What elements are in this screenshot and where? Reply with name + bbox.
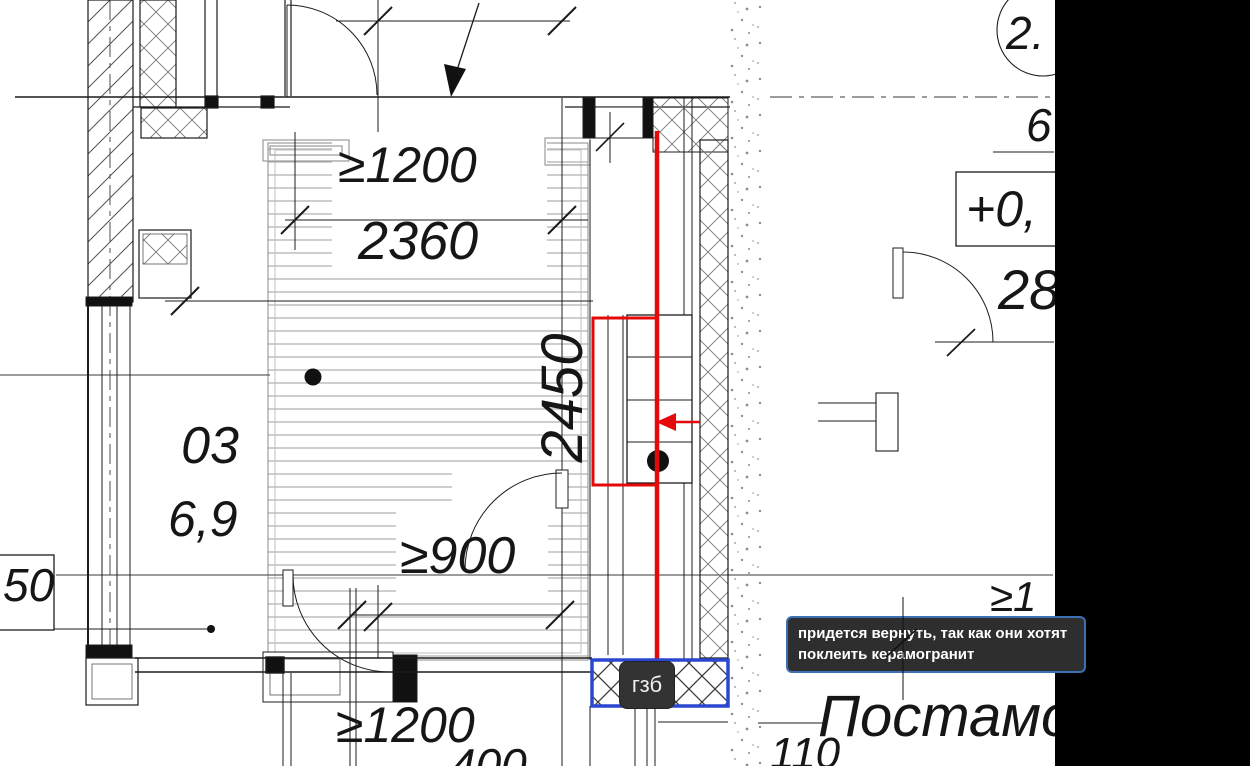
elevation-mark: +0, xyxy=(966,184,1037,234)
pedestal-label: Постамо xyxy=(818,688,1073,746)
dim-top-min: ≥1200 xyxy=(338,140,477,190)
comment-tooltip-line2: поклеить керамогранит xyxy=(798,644,1074,665)
leader-arrow xyxy=(444,3,479,97)
dim-right-partial: 28 xyxy=(998,262,1060,318)
dim-side-actual: 2450 xyxy=(534,333,592,462)
cad-viewport[interactable]: ≥1200 2360 2450 ≥900 ≥1200 400 03 6,9 50… xyxy=(0,0,1250,766)
dim-bottom-partial: 400 xyxy=(450,742,527,766)
gzb-tag-chip[interactable]: гзб xyxy=(620,662,674,708)
room-area-label: 6,9 xyxy=(168,494,238,544)
area-top-right: 6 xyxy=(1026,102,1052,148)
comment-tooltip-line1: придется вернуть, так как они хотят xyxy=(798,623,1074,644)
comment-tooltip: придется вернуть, так как они хотят покл… xyxy=(786,616,1086,673)
dim-left-partial: 50 xyxy=(3,562,54,608)
gzb-tag-label: гзб xyxy=(632,672,662,698)
dim-right-min: ≥1 xyxy=(990,576,1036,618)
dim-door-min: ≥900 xyxy=(400,530,515,582)
room-number-tag: 03 xyxy=(157,420,263,472)
room-tag-top-right: 2. xyxy=(1006,10,1044,56)
dim-top-actual: 2360 xyxy=(358,214,478,268)
